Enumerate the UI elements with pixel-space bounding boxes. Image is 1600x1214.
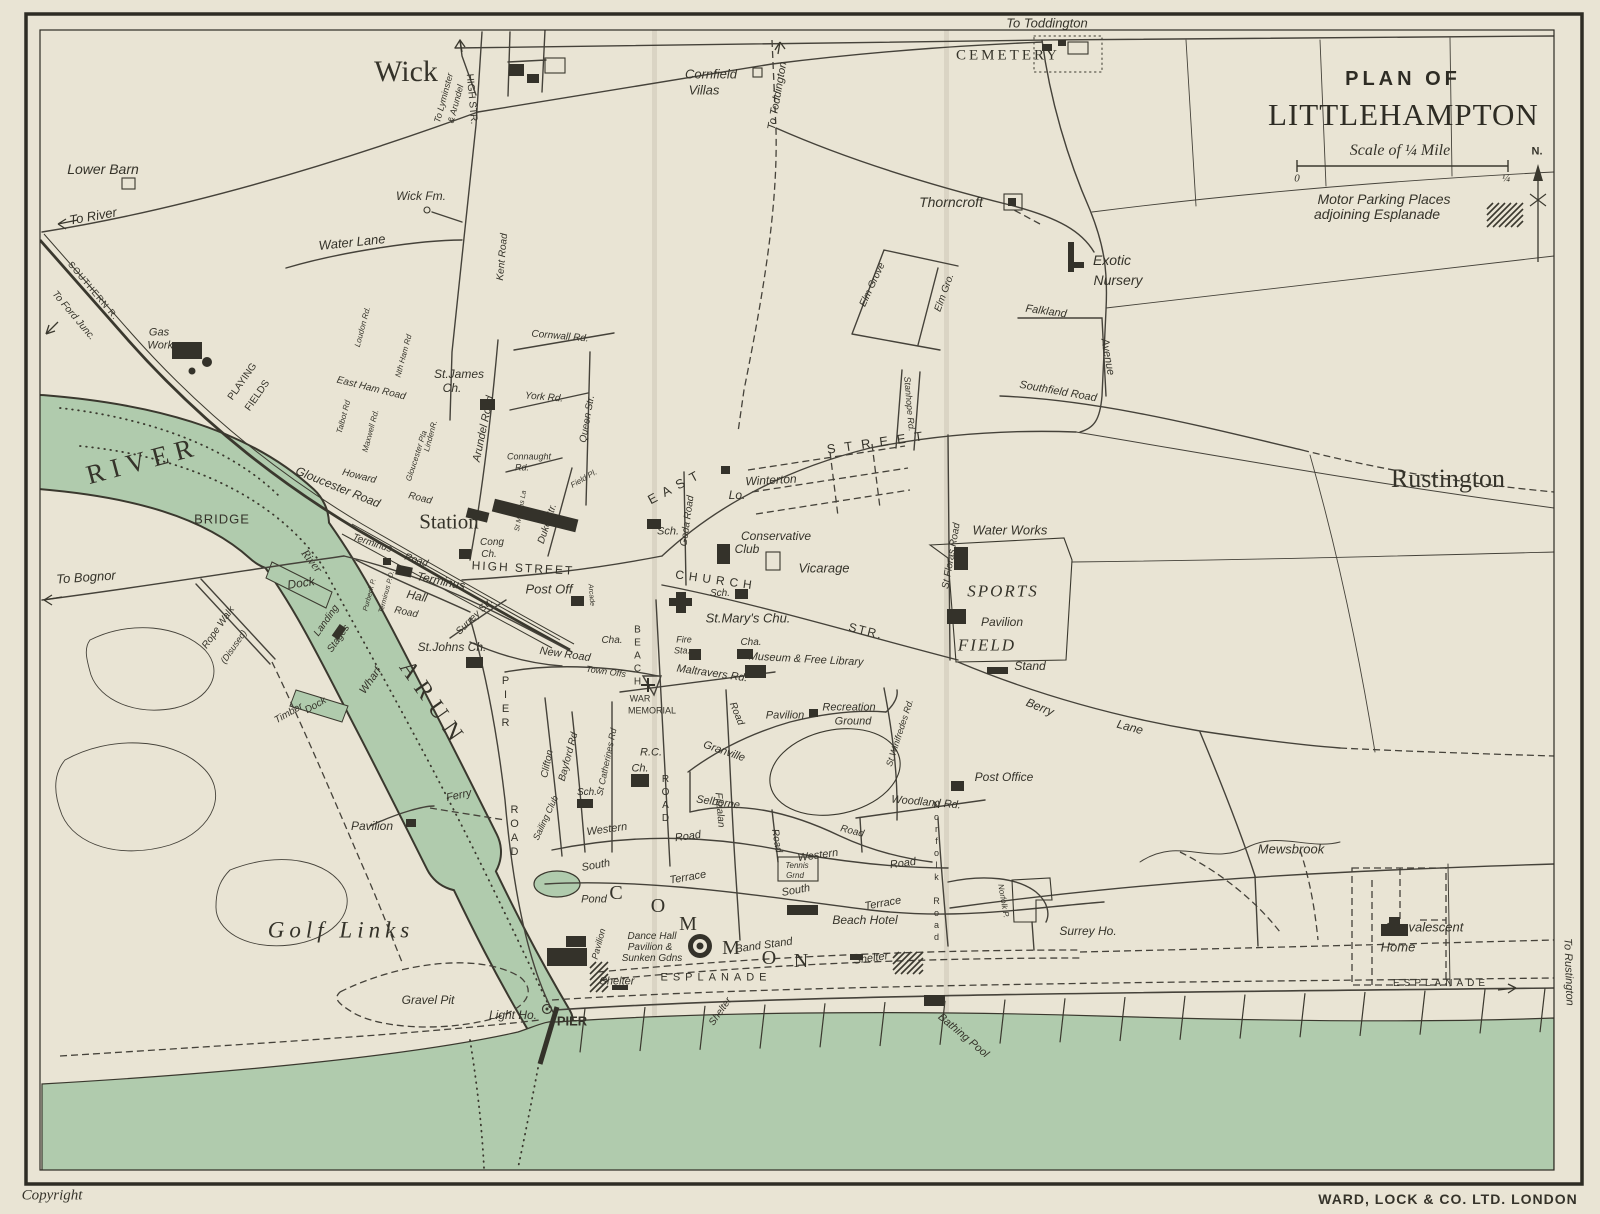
- map-label: Sunken Gdns: [622, 954, 683, 964]
- map-label: MEMORIAL: [628, 707, 676, 716]
- map-label: ARUN: [394, 656, 471, 752]
- map-label: St.James: [434, 368, 484, 380]
- map-label: Dock: [287, 575, 316, 591]
- map-title-line2: LITTLEHAMPTON: [1268, 97, 1538, 133]
- map-label: Terminus: [351, 533, 393, 555]
- map-label: River: [299, 547, 324, 575]
- map-label: Tennis: [785, 862, 808, 870]
- map-label: Cha.: [740, 638, 761, 648]
- map-label: New Road: [539, 646, 591, 664]
- map-label: Maltravers Rd.: [676, 664, 748, 685]
- map-label: Shelter: [600, 977, 635, 988]
- map-label: Woodland Rd.: [891, 794, 961, 811]
- map-label: Pond: [581, 895, 607, 906]
- map-label: Nth Ham Rd: [394, 334, 413, 379]
- map-label: HIGH STREET: [471, 559, 574, 576]
- map-label: Museum & Free Library: [748, 651, 863, 668]
- map-label: South: [581, 858, 611, 874]
- map-label: Ground: [835, 717, 872, 728]
- map-label: Town Offs: [585, 665, 626, 680]
- map-label: Nursery: [1093, 273, 1142, 287]
- map-label: RIVER: [83, 433, 202, 489]
- map-label: PIER: [557, 1015, 587, 1028]
- map-label: FIELDS: [244, 379, 272, 413]
- map-label: Stages: [326, 623, 352, 654]
- map-label: Wick: [374, 57, 438, 87]
- map-label: York Rd.: [524, 391, 563, 404]
- map-label: Ch.: [631, 764, 648, 775]
- map-label: Pavilion &: [628, 943, 672, 953]
- map-label: To Bognor: [56, 568, 116, 585]
- map-label: Falkland: [1025, 304, 1068, 321]
- map-label: Bayford Rd: [558, 732, 581, 783]
- map-label: Gloucester Road: [294, 465, 382, 510]
- map-label: Dance Hall: [628, 932, 677, 942]
- map-title-line1: PLAN OF: [1268, 68, 1538, 91]
- scale-zero: 0: [1294, 174, 1300, 185]
- map-label: Arundel Road: [472, 395, 497, 463]
- map-label: ROAD: [660, 774, 670, 826]
- map-label: Convalescent: [1385, 921, 1464, 934]
- map-label: Gas: [149, 328, 169, 339]
- map-label: Wick Fm.: [396, 190, 446, 202]
- map-label: Field Pl.: [569, 468, 598, 489]
- map-label: Fire: [676, 636, 692, 645]
- map-label: BEACH: [632, 625, 642, 690]
- map-label: M: [679, 914, 697, 934]
- map-label: South: [781, 883, 811, 899]
- map-label: Stanhope Rd.: [902, 376, 916, 432]
- map-label: C: [609, 883, 622, 903]
- map-label: Stand: [1014, 660, 1045, 672]
- map-label: Cornfield: [685, 68, 737, 81]
- map-label: Villas: [689, 84, 720, 97]
- map-label: Terminus P.O.: [378, 570, 396, 614]
- map-label: PIER: [500, 675, 511, 731]
- scale-label: Scale of ¼ Mile: [1350, 143, 1450, 159]
- map-label: Norfolk Road: [932, 800, 941, 944]
- map-label: Post Off: [526, 583, 573, 596]
- map-label: Terrace: [864, 895, 902, 912]
- map-label: Pavilion: [766, 711, 805, 722]
- legend-parking-line1: Motor Parking Places: [1317, 192, 1450, 206]
- map-label: Club: [735, 543, 760, 555]
- map-label: Timber: [273, 702, 305, 726]
- map-label: Purbeck P.: [362, 578, 377, 612]
- map-label: N: [794, 951, 808, 971]
- map-label: Sch.: [710, 589, 730, 599]
- map-label: Cong: [480, 538, 504, 548]
- map-label: Shelter: [708, 996, 734, 1028]
- map-label: Road: [393, 606, 418, 621]
- compass-north-label: N.: [1532, 147, 1543, 158]
- map-label: Road: [889, 857, 917, 872]
- map-label: STREET: [826, 428, 932, 456]
- map-label: Pavilion: [981, 616, 1023, 628]
- map-label: Winterton: [745, 473, 797, 488]
- map-label: Cha.: [601, 636, 622, 646]
- map-label: East Ham Road: [336, 376, 407, 403]
- map-label: To Ford Junc.: [50, 290, 97, 343]
- map-label: STR.: [847, 621, 884, 641]
- map-label: Ch.: [443, 382, 462, 394]
- map-label: Exotic: [1093, 253, 1131, 267]
- map-label: Road: [769, 828, 783, 853]
- map-label: To Rustington: [1561, 938, 1574, 1006]
- map-label: Bathing Pool: [936, 1012, 991, 1061]
- footer-publisher: WARD, LOCK & CO. LTD. LONDON: [1318, 1192, 1578, 1206]
- map-label: O: [651, 896, 665, 916]
- scale-quarter: ¼: [1502, 174, 1510, 185]
- map-label: ESPLANADE: [1393, 979, 1489, 989]
- map-label: Cornwall Rd.: [531, 330, 589, 345]
- map-label: Station: [419, 512, 479, 533]
- map-label: LindenR.: [423, 419, 439, 452]
- map-label: Dock: [304, 696, 329, 716]
- map-label: Clifton: [540, 749, 556, 779]
- map-label: (Disused): [219, 629, 248, 666]
- map-label: Duke Str.: [537, 503, 559, 545]
- map-label: Lower Barn: [67, 162, 139, 176]
- map-label: Road: [407, 491, 433, 506]
- map-label: ROAD: [509, 804, 520, 860]
- map-label: Queen Str.: [579, 394, 597, 443]
- map-label: To Toddington: [1006, 17, 1087, 30]
- map-label: Vicarage: [798, 562, 849, 575]
- map-label: Water Lane: [318, 232, 386, 252]
- map-label: Berry: [1024, 696, 1055, 718]
- map-label: Loudon Rd.: [354, 306, 372, 348]
- map-label: Surrey Str.: [455, 597, 496, 638]
- map-label: Golf Links: [268, 919, 414, 942]
- legend-parking-line2: adjoining Esplanade: [1314, 207, 1440, 221]
- map-label: Pavilion: [351, 820, 393, 832]
- map-label: EAST: [646, 466, 707, 507]
- map-label: Norfolk P.: [996, 884, 1010, 919]
- map-label: Conservative: [741, 530, 811, 542]
- map-label: O: [762, 948, 776, 968]
- map-label: To River: [68, 205, 117, 226]
- map-label: Beach Hotel: [832, 914, 897, 926]
- map-label: St Martins La: [514, 490, 528, 532]
- map-label: Lane: [1116, 718, 1145, 737]
- map-label: Road: [403, 553, 429, 570]
- map-label: Sailing Club: [532, 794, 560, 841]
- map-label: M: [722, 938, 740, 958]
- map-label: Home: [1381, 941, 1416, 954]
- map-label: HIGH STR.: [464, 73, 478, 124]
- map-label: Ferry: [445, 788, 472, 804]
- map-label: Maxwell Rd.: [361, 409, 380, 453]
- map-label: Hall: [406, 588, 429, 604]
- map-label: Granville: [702, 740, 747, 765]
- map-label: Lo.: [729, 489, 746, 501]
- map-label: St.Johns Ch.: [418, 641, 487, 653]
- map-label: Road: [839, 824, 865, 839]
- map-label: Works: [147, 341, 178, 352]
- map-plan-littlehampton: WickRustingtonCEMETERYTo ToddingtonTo To…: [0, 0, 1600, 1214]
- map-label: Road: [727, 701, 745, 727]
- map-label: Avenue: [1098, 338, 1115, 376]
- map-label: St Floras Road: [941, 522, 962, 589]
- map-label: Surrey Ho.: [1059, 925, 1116, 937]
- map-label: ESPLANADE: [660, 973, 771, 984]
- map-label: Wharf: [358, 666, 384, 696]
- map-label: Water Works: [973, 524, 1048, 537]
- map-label: St Catherines Rd: [595, 728, 618, 797]
- map-label: Connaught: [507, 453, 551, 462]
- map-label: Talbot Rd: [336, 400, 353, 435]
- map-label: Terrace: [669, 869, 707, 886]
- map-label: Elm Grove: [858, 261, 887, 308]
- footer-copyright: Copyright: [22, 1189, 83, 1204]
- map-label: Southfield Road: [1018, 380, 1097, 404]
- map-label: St Winifredes Rd.: [885, 698, 915, 767]
- map-label: Gravel Pit: [402, 994, 455, 1006]
- map-label: Grnd: [786, 872, 804, 880]
- map-label: Recreation: [822, 703, 875, 714]
- map-label: Shelter: [853, 951, 889, 967]
- map-label: SPORTS: [967, 583, 1039, 600]
- map-label: Sta.: [674, 647, 690, 656]
- map-label: FIELD: [958, 637, 1016, 654]
- map-label: Western: [586, 822, 628, 839]
- map-label: Rustington: [1391, 466, 1505, 492]
- map-labels-layer: WickRustingtonCEMETERYTo ToddingtonTo To…: [0, 0, 1600, 1214]
- map-label: Pavilion: [591, 928, 608, 961]
- map-label: BRIDGE: [194, 513, 250, 526]
- map-label: R.C.: [640, 748, 662, 759]
- map-label: Road: [674, 830, 702, 845]
- map-label: Rd.: [515, 464, 529, 473]
- map-label: Kent Road: [496, 233, 510, 281]
- map-label: Fitzalan: [712, 792, 725, 828]
- map-label: Goda Road: [679, 495, 696, 547]
- map-label: Thorncroft: [919, 195, 983, 209]
- map-label: Mewsbrook: [1258, 843, 1324, 856]
- map-label: St.Mary's Chu.: [706, 612, 791, 625]
- map-label: Light Ho.: [489, 1009, 537, 1021]
- map-label: Post Office: [975, 771, 1034, 783]
- map-label: To Toddington: [767, 61, 790, 131]
- map-label: CEMETERY: [956, 49, 1060, 64]
- map-label: Arcade: [587, 584, 596, 607]
- map-label: Terminus: [416, 570, 466, 592]
- map-label: Elm Gro.: [934, 273, 957, 313]
- map-title: PLAN OF LITTLEHAMPTON: [1268, 68, 1538, 133]
- map-label: Sch.: [657, 527, 679, 538]
- map-label: WAR: [630, 695, 651, 704]
